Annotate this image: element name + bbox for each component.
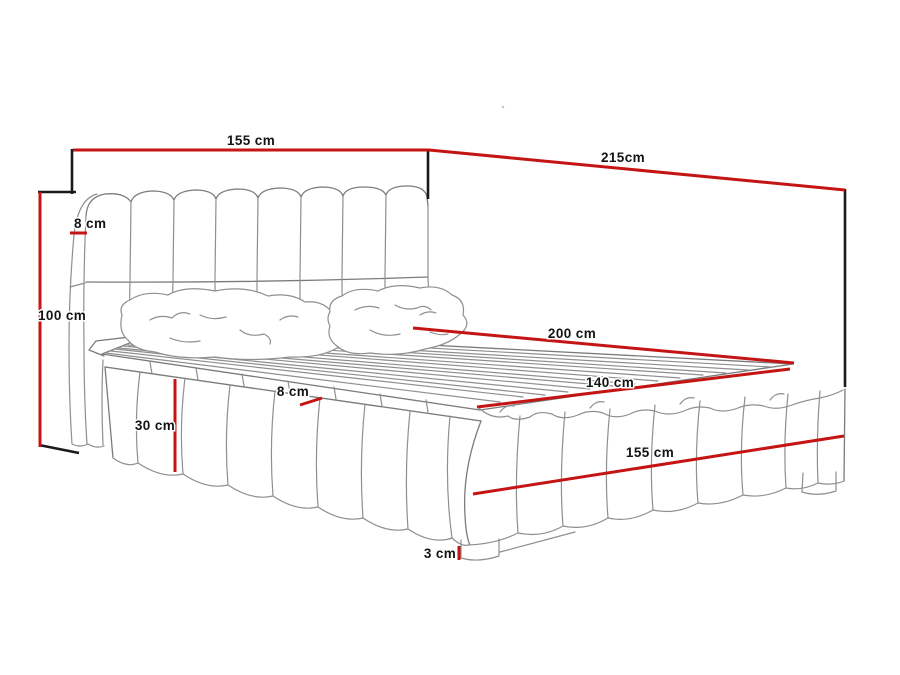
dim-label-headboard-thickness: 8 cm: [74, 216, 106, 231]
dim-label-leg-height: 3 cm: [424, 546, 456, 561]
pillow-right-fill: [328, 286, 467, 355]
bed-dimension-diagram: 155 cm 215cm 100 cm 8 cm 200 cm 140 cm 1…: [0, 0, 900, 675]
paper-speck: [502, 106, 505, 109]
dim-label-inner-width: 140 cm: [586, 375, 634, 390]
dim-label-headboard-height: 100 cm: [38, 308, 86, 323]
dim-label-inner-length: 200 cm: [548, 326, 596, 341]
foot-panel-fill: [468, 389, 845, 545]
dim-label-foot-width: 155 cm: [626, 445, 674, 460]
dim-label-headboard-width: 155 cm: [227, 133, 275, 148]
ref-bottom-left-tick: [39, 445, 79, 453]
pillows: [121, 286, 467, 360]
dim-label-base-height: 30 cm: [135, 418, 175, 433]
dim-label-frame-length: 215cm: [601, 150, 645, 165]
dim-label-frame-edge: 8 cm: [277, 384, 309, 399]
diagram-canvas: 155 cm 215cm 100 cm 8 cm 200 cm 140 cm 1…: [0, 0, 900, 675]
